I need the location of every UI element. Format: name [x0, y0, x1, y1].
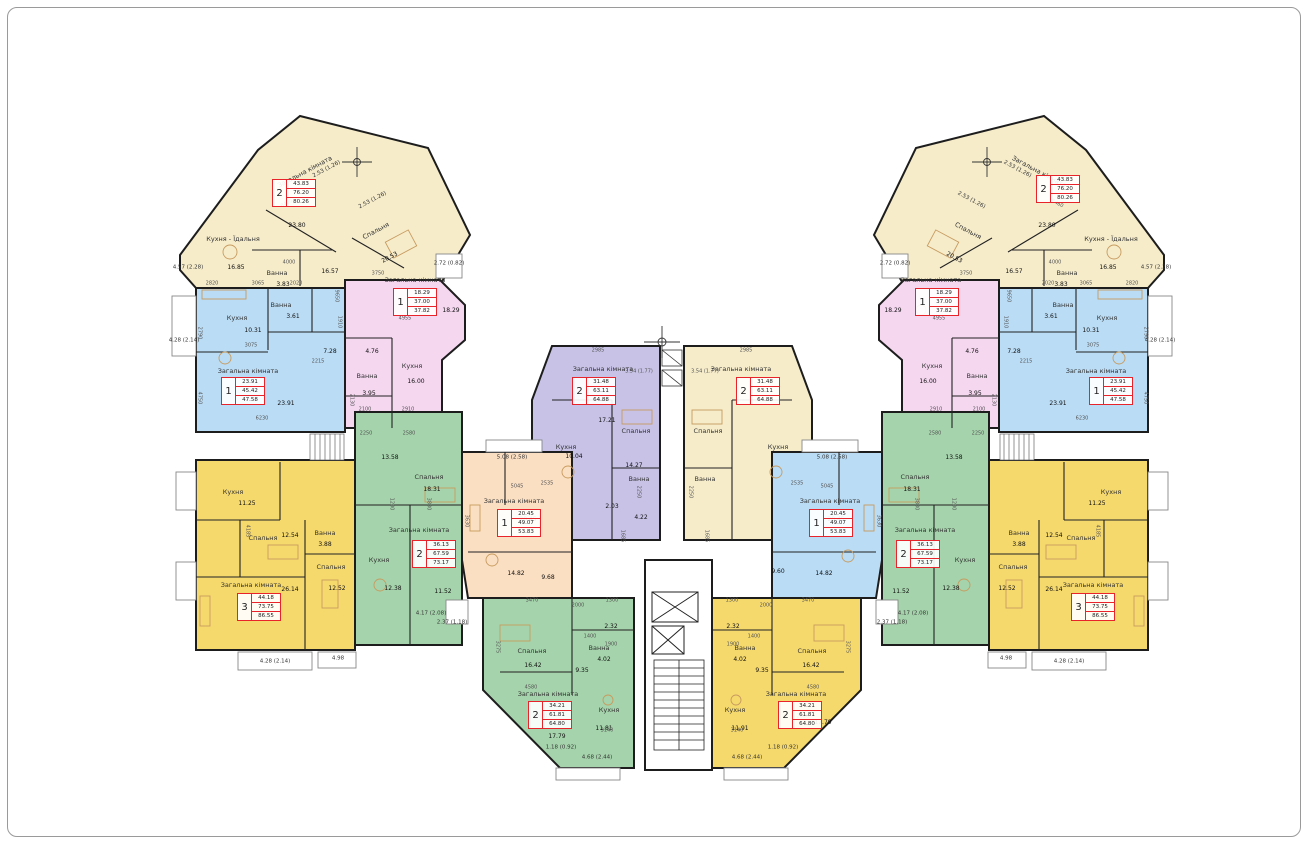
- room-label: Кухня: [1101, 489, 1121, 496]
- area-label: 23.91: [277, 401, 294, 407]
- apartment-total-area: 80.26: [287, 198, 315, 206]
- dim-label: 4750: [1143, 392, 1148, 405]
- area-label: 7.28: [1007, 349, 1020, 355]
- dim-label: 9650: [1006, 290, 1011, 303]
- room-label: Загальна кімната: [1066, 368, 1126, 375]
- area-label: 13.58: [945, 455, 962, 461]
- area-label: 13.58: [381, 455, 398, 461]
- room-label: Загальна кімната: [518, 691, 578, 698]
- dim-label: 3075: [245, 344, 258, 349]
- dim-label: 1300: [726, 599, 739, 604]
- apartment-living-area: 20.45: [512, 510, 540, 519]
- apartment-total-area: 64.88: [751, 396, 779, 404]
- balc-label: 4.98: [332, 656, 344, 662]
- apartment-total-area: 80.26: [1051, 194, 1079, 202]
- area-label: 16.57: [1005, 269, 1022, 275]
- dim-label: 6230: [256, 417, 269, 422]
- balc-label: 5.08 (2.58): [497, 455, 528, 461]
- dim-label: 2910: [402, 408, 415, 413]
- apartment-info-box[interactable]: 2 34.21 61.81 64.80: [778, 701, 822, 729]
- dim-label: 3830: [426, 498, 431, 511]
- apartment-info-box[interactable]: 1 18.29 37.00 37.82: [915, 288, 959, 316]
- apartment-info-box[interactable]: 2 36.13 67.59 73.17: [412, 540, 456, 568]
- area-label: 3.83: [276, 282, 289, 288]
- room-label: Кухня: [725, 707, 745, 714]
- dim-label: 2985: [592, 349, 605, 354]
- dim-label: 3470: [802, 599, 815, 604]
- dim-label: 3275: [845, 641, 850, 654]
- dim-label: 4955: [399, 317, 412, 322]
- dim-label: 3075: [1087, 344, 1100, 349]
- area-label: 23.80: [288, 223, 305, 229]
- apartment-living-area: 43.83: [1051, 176, 1079, 185]
- dim-label: 3.54 (1.77): [625, 370, 653, 375]
- balc-label: 2.37 (1.18): [437, 620, 468, 626]
- apartment-info-box[interactable]: 3 44.18 73.75 86.55: [1071, 593, 1115, 621]
- dim-label: 2250: [636, 486, 641, 499]
- apartment-living-area: 36.13: [911, 541, 939, 550]
- balc-label: 4.68 (2.44): [732, 755, 763, 761]
- room-label: Ванна: [695, 476, 716, 483]
- room-label: Ванна: [1053, 302, 1074, 309]
- apartment-total-area: 53.83: [824, 528, 852, 536]
- dim-label: 2910: [930, 408, 943, 413]
- dim-label: 1685: [704, 530, 709, 543]
- apartment-rooms-count: 2: [1037, 176, 1051, 202]
- dim-label: 1900: [605, 643, 618, 648]
- area-label: 9.35: [575, 668, 588, 674]
- apartment-total-area: 37.82: [930, 307, 958, 315]
- area-label: 2.32: [726, 624, 739, 630]
- area-label: 11.25: [1088, 501, 1105, 507]
- apartment-rooms-count: 2: [737, 378, 751, 404]
- dim-label: 2985: [740, 349, 753, 354]
- apartment-rooms-count: 2: [779, 702, 793, 728]
- dim-label: 2215: [1020, 360, 1033, 365]
- dim-label: 4000: [283, 261, 296, 266]
- dim-label: 2020: [1042, 282, 1055, 287]
- dim-label: 2130: [991, 394, 996, 407]
- area-label: 3.95: [968, 391, 981, 397]
- area-label: 16.85: [227, 265, 244, 271]
- area-label: 4.02: [597, 657, 610, 663]
- apartment-total-area: 47.58: [236, 396, 264, 404]
- dim-label: 2100: [359, 408, 372, 413]
- area-label: 7.28: [323, 349, 336, 355]
- area-label: 12.52: [328, 586, 345, 592]
- dim-label: 3830: [914, 498, 919, 511]
- apartment-floor-area: 49.07: [824, 519, 852, 528]
- dim-label: 2130: [349, 394, 354, 407]
- area-label: 14.82: [815, 571, 832, 577]
- apartment-floor-area: 67.59: [427, 550, 455, 559]
- area-label: 20.53: [381, 251, 399, 264]
- apartment-total-area: 64.88: [587, 396, 615, 404]
- room-label: Кухня: [369, 557, 389, 564]
- apartment-info-box[interactable]: 1 23.91 45.42 47.58: [1089, 377, 1133, 405]
- dim-label: 3.54 (1.77): [691, 370, 719, 375]
- area-label: 16.00: [407, 379, 424, 385]
- area-label: 23.80: [1038, 223, 1055, 229]
- dim-label: 4580: [525, 686, 538, 691]
- apartment-total-area: 64.80: [793, 720, 821, 728]
- dim-label: 4580: [807, 686, 820, 691]
- dim-label: 1400: [584, 635, 597, 640]
- room-label: Кухня - Їдальня: [1084, 236, 1138, 243]
- apartment-total-area: 86.55: [1086, 612, 1114, 620]
- area-label: 3.61: [1044, 314, 1057, 320]
- dim-label: 3140: [731, 729, 744, 734]
- apartment-living-area: 20.45: [824, 510, 852, 519]
- area-label: 3.88: [1012, 542, 1025, 548]
- room-label: Спальня: [317, 564, 346, 571]
- area-label: 12.38: [942, 586, 959, 592]
- room-label: Кухня: [599, 707, 619, 714]
- room-label: Кухня: [922, 363, 942, 370]
- area-label: 4.76: [965, 349, 978, 355]
- apartment-rooms-count: 2: [413, 541, 427, 567]
- room-label: Спальня: [798, 648, 827, 655]
- apartment-rooms-count: 1: [222, 378, 236, 404]
- dim-label: 1300: [606, 599, 619, 604]
- dim-label: 4185: [1095, 525, 1100, 538]
- apartment-total-area: 73.17: [427, 559, 455, 567]
- apartment-floor-area: 49.07: [512, 519, 540, 528]
- apartment-living-area: 44.18: [252, 594, 280, 603]
- apartment-floor-area: 73.75: [252, 603, 280, 612]
- balc-label: 4.28 (2.14): [1054, 659, 1085, 665]
- apartment-rooms-count: 3: [1072, 594, 1086, 620]
- room-label: Кухня: [556, 444, 576, 451]
- dim-label: 3750: [960, 272, 973, 277]
- dim-label: 2215: [312, 360, 325, 365]
- area-label: 4.02: [733, 657, 746, 663]
- floor-plan-canvas: Загальна кімнатаКухня - ЇдальняСпальняВа…: [0, 0, 1308, 844]
- dim-label: 4000: [1049, 261, 1062, 266]
- area-label: 3.61: [286, 314, 299, 320]
- room-label: Загальна кімната: [385, 277, 445, 284]
- area-label: 16.00: [919, 379, 936, 385]
- dim-label: 3140: [601, 729, 614, 734]
- area-label: 23.91: [1049, 401, 1066, 407]
- area-label: 3.95: [362, 391, 375, 397]
- apartment-living-area: 43.83: [287, 180, 315, 189]
- area-label: 18.29: [442, 308, 459, 314]
- dim-label: 2000: [572, 604, 585, 609]
- apartment-info-box[interactable]: 2 43.83 76.20 80.26: [1036, 175, 1080, 203]
- apartment-floor-area: 61.81: [543, 711, 571, 720]
- apartment-floor-area: 37.00: [408, 298, 436, 307]
- area-label: 12.52: [998, 586, 1015, 592]
- room-label: Загальна кімната: [800, 498, 860, 505]
- area-label: 9.60: [771, 569, 784, 575]
- apartment-rooms-count: 2: [273, 180, 287, 206]
- dim-label: 3750: [372, 272, 385, 277]
- area-label: 16.57: [321, 269, 338, 275]
- apartment-floor-area: 76.20: [1051, 185, 1079, 194]
- apartment-rooms-count: 1: [1090, 378, 1104, 404]
- apartment-living-area: 44.18: [1086, 594, 1114, 603]
- room-label: Ванна: [967, 373, 988, 380]
- dim-label: 2250: [972, 432, 985, 437]
- room-label: Загальна кімната: [218, 368, 278, 375]
- room-label: Спальня: [999, 564, 1028, 571]
- balc-label: 4.98: [1000, 656, 1012, 662]
- balc-label: 1.18 (0.92): [768, 745, 799, 751]
- room-label: Кухня: [955, 557, 975, 564]
- balc-label: 4.28 (2.14): [260, 659, 291, 665]
- balc-label: 5.08 (2.58): [817, 455, 848, 461]
- area-label: 14.82: [507, 571, 524, 577]
- room-label: Загальна кімната: [484, 498, 544, 505]
- area-label: 11.25: [238, 501, 255, 507]
- balc-label: 1.18 (0.92): [546, 745, 577, 751]
- apartment-living-area: 31.48: [587, 378, 615, 387]
- balc-label: 4.57 (2.28): [173, 265, 204, 271]
- apartment-total-area: 37.82: [408, 307, 436, 315]
- room-label: Ванна: [267, 270, 288, 277]
- apartment-living-area: 23.91: [236, 378, 264, 387]
- apartment-rooms-count: 1: [498, 510, 512, 536]
- dim-label: 3630: [464, 515, 469, 528]
- apartment-info-box[interactable]: 1 20.45 49.07 53.83: [497, 509, 541, 537]
- room-label: Загальна кімната: [389, 527, 449, 534]
- room-label: Кухня: [1097, 315, 1117, 322]
- dim-label: 6230: [1076, 417, 1089, 422]
- room-label: Загальна кімната: [766, 691, 826, 698]
- balc-label: 2.53 (1.26): [358, 191, 388, 210]
- room-label: Спальня: [415, 474, 444, 481]
- apartment-living-area: 31.48: [751, 378, 779, 387]
- apartment-living-area: 34.21: [793, 702, 821, 711]
- balc-label: 4.28 (2.14): [169, 338, 200, 344]
- room-label: Спальня: [362, 221, 391, 240]
- room-label: Спальня: [954, 221, 983, 240]
- dim-label: 2250: [688, 486, 693, 499]
- dim-label: 5045: [821, 485, 834, 490]
- room-label: Ванна: [315, 530, 336, 537]
- apartment-total-area: 73.17: [911, 559, 939, 567]
- room-label: Кухня: [227, 315, 247, 322]
- apartment-rooms-count: 2: [897, 541, 911, 567]
- balc-label: 4.57 (2.28): [1141, 265, 1172, 271]
- area-label: 3.83: [1054, 282, 1067, 288]
- room-label: Загальна кімната: [901, 277, 961, 284]
- area-label: 16.42: [524, 663, 541, 669]
- room-label: Кухня: [768, 444, 788, 451]
- dim-label: 1685: [620, 530, 625, 543]
- balc-label: 2.37 (1.18): [877, 620, 908, 626]
- apartment-info-box[interactable]: 1 23.91 45.42 47.58: [221, 377, 265, 405]
- apartment-info-box[interactable]: 1 20.45 49.07 53.83: [809, 509, 853, 537]
- dim-label: 3065: [252, 282, 265, 287]
- room-label: Загальна кімната: [1063, 582, 1123, 589]
- dim-label: 2250: [360, 432, 373, 437]
- apartment-total-area: 53.83: [512, 528, 540, 536]
- dim-label: 1910: [337, 316, 342, 329]
- balc-label: 4.17 (2.08): [898, 611, 929, 617]
- area-label: 10.04: [565, 454, 582, 460]
- area-label: 17.79: [548, 734, 565, 740]
- apartment-rooms-count: 3: [238, 594, 252, 620]
- balc-label: 2.53 (1.26): [956, 191, 986, 210]
- dim-label: 2820: [1126, 282, 1139, 287]
- area-label: 10.31: [244, 328, 261, 334]
- area-label: 11.52: [434, 589, 451, 595]
- room-label: Ванна: [1009, 530, 1030, 537]
- apartment-floor-area: 67.59: [911, 550, 939, 559]
- area-label: 3.88: [318, 542, 331, 548]
- apartment-info-box[interactable]: 2 31.48 63.11 64.88: [736, 377, 780, 405]
- dim-label: 3065: [1080, 282, 1093, 287]
- room-label: Ванна: [357, 373, 378, 380]
- dim-label: 2820: [206, 282, 219, 287]
- area-label: 17.21: [598, 418, 615, 424]
- area-label: 4.22: [634, 515, 647, 521]
- apartment-floor-area: 45.42: [236, 387, 264, 396]
- area-label: 18.31: [903, 487, 920, 493]
- dim-label: 2580: [403, 432, 416, 437]
- dim-label: 2580: [929, 432, 942, 437]
- dim-label: 3470: [526, 599, 539, 604]
- balc-label: 2.72 (0.82): [434, 261, 465, 267]
- area-label: 11.52: [892, 589, 909, 595]
- area-label: 16.85: [1099, 265, 1116, 271]
- area-label: 20.53: [945, 251, 963, 264]
- room-label: Спальня: [694, 428, 723, 435]
- apartment-living-area: 18.29: [408, 289, 436, 298]
- area-label: 2.32: [604, 624, 617, 630]
- dim-label: 3275: [495, 641, 500, 654]
- room-label: Ванна: [629, 476, 650, 483]
- apartment-living-area: 36.13: [427, 541, 455, 550]
- balc-label: 4.28 (2.14): [1145, 338, 1176, 344]
- room-label: Ванна: [271, 302, 292, 309]
- apartment-total-area: 47.58: [1104, 396, 1132, 404]
- area-label: 2.03: [605, 504, 618, 510]
- apartment-info-box[interactable]: 3 44.18 73.75 86.55: [237, 593, 281, 621]
- room-label: Спальня: [622, 428, 651, 435]
- dim-label: 1910: [1003, 316, 1008, 329]
- apartment-floor-area: 37.00: [930, 298, 958, 307]
- dim-label: 2020: [290, 282, 303, 287]
- room-label: Спальня: [901, 474, 930, 481]
- area-label: 26.14: [1045, 587, 1062, 593]
- room-label: Загальна кімната: [895, 527, 955, 534]
- apartment-total-area: 86.55: [252, 612, 280, 620]
- dim-label: 4750: [197, 392, 202, 405]
- area-label: 12.54: [1045, 533, 1062, 539]
- apartment-rooms-count: 2: [529, 702, 543, 728]
- dim-label: 3630: [876, 515, 881, 528]
- apartment-floor-area: 45.42: [1104, 387, 1132, 396]
- area-label: 26.14: [281, 587, 298, 593]
- apartment-floor-area: 76.20: [287, 189, 315, 198]
- room-label: Спальня: [1067, 535, 1096, 542]
- dim-label: 2100: [973, 408, 986, 413]
- apartment-info-box[interactable]: 2 31.48 63.11 64.88: [572, 377, 616, 405]
- balc-label: 2.72 (0.82): [880, 261, 911, 267]
- dim-label: 1200: [389, 498, 394, 511]
- dim-label: 1200: [951, 498, 956, 511]
- area-label: 4.76: [365, 349, 378, 355]
- room-label: Спальня: [518, 648, 547, 655]
- apartment-rooms-count: 1: [394, 289, 408, 315]
- apartment-info-box[interactable]: 2 43.83 76.20 80.26: [272, 179, 316, 207]
- room-label: Кухня: [402, 363, 422, 370]
- area-label: 9.68: [541, 575, 554, 581]
- dim-label: 4955: [933, 317, 946, 322]
- apartment-rooms-count: 2: [573, 378, 587, 404]
- dim-label: 4185: [245, 525, 250, 538]
- apartment-total-area: 64.80: [543, 720, 571, 728]
- area-label: 18.31: [423, 487, 440, 493]
- apartment-floor-area: 63.11: [587, 387, 615, 396]
- dim-label: 9650: [334, 290, 339, 303]
- room-label: Ванна: [1057, 270, 1078, 277]
- apartment-living-area: 18.29: [930, 289, 958, 298]
- apartment-info-box[interactable]: 2 34.21 61.81 64.80: [528, 701, 572, 729]
- dim-label: 1400: [748, 635, 761, 640]
- area-label: 9.35: [755, 668, 768, 674]
- apartment-floor-area: 73.75: [1086, 603, 1114, 612]
- room-label: Спальня: [249, 535, 278, 542]
- apartment-floor-area: 61.81: [793, 711, 821, 720]
- apartment-living-area: 34.21: [543, 702, 571, 711]
- area-label: 16.42: [802, 663, 819, 669]
- dim-label: 2535: [541, 482, 554, 487]
- annotation-layer: Загальна кімнатаКухня - ЇдальняСпальняВа…: [0, 0, 1308, 844]
- balc-label: 4.68 (2.44): [582, 755, 613, 761]
- room-label: Загальна кімната: [221, 582, 281, 589]
- area-label: 14.27: [625, 463, 642, 469]
- apartment-floor-area: 63.11: [751, 387, 779, 396]
- dim-label: 2000: [760, 604, 773, 609]
- dim-label: 5045: [511, 485, 524, 490]
- room-label: Кухня - Їдальня: [206, 236, 260, 243]
- apartment-rooms-count: 1: [810, 510, 824, 536]
- room-label: Кухня: [223, 489, 243, 496]
- area-label: 18.29: [884, 308, 901, 314]
- apartment-info-box[interactable]: 2 36.13 67.59 73.17: [896, 540, 940, 568]
- dim-label: 1900: [727, 643, 740, 648]
- area-label: 12.38: [384, 586, 401, 592]
- apartment-rooms-count: 1: [916, 289, 930, 315]
- apartment-living-area: 23.91: [1104, 378, 1132, 387]
- dim-label: 2535: [791, 482, 804, 487]
- balc-label: 4.17 (2.08): [416, 611, 447, 617]
- area-label: 10.31: [1082, 328, 1099, 334]
- apartment-info-box[interactable]: 1 18.29 37.00 37.82: [393, 288, 437, 316]
- area-label: 12.54: [281, 533, 298, 539]
- room-label: Загальна кімната: [711, 366, 771, 373]
